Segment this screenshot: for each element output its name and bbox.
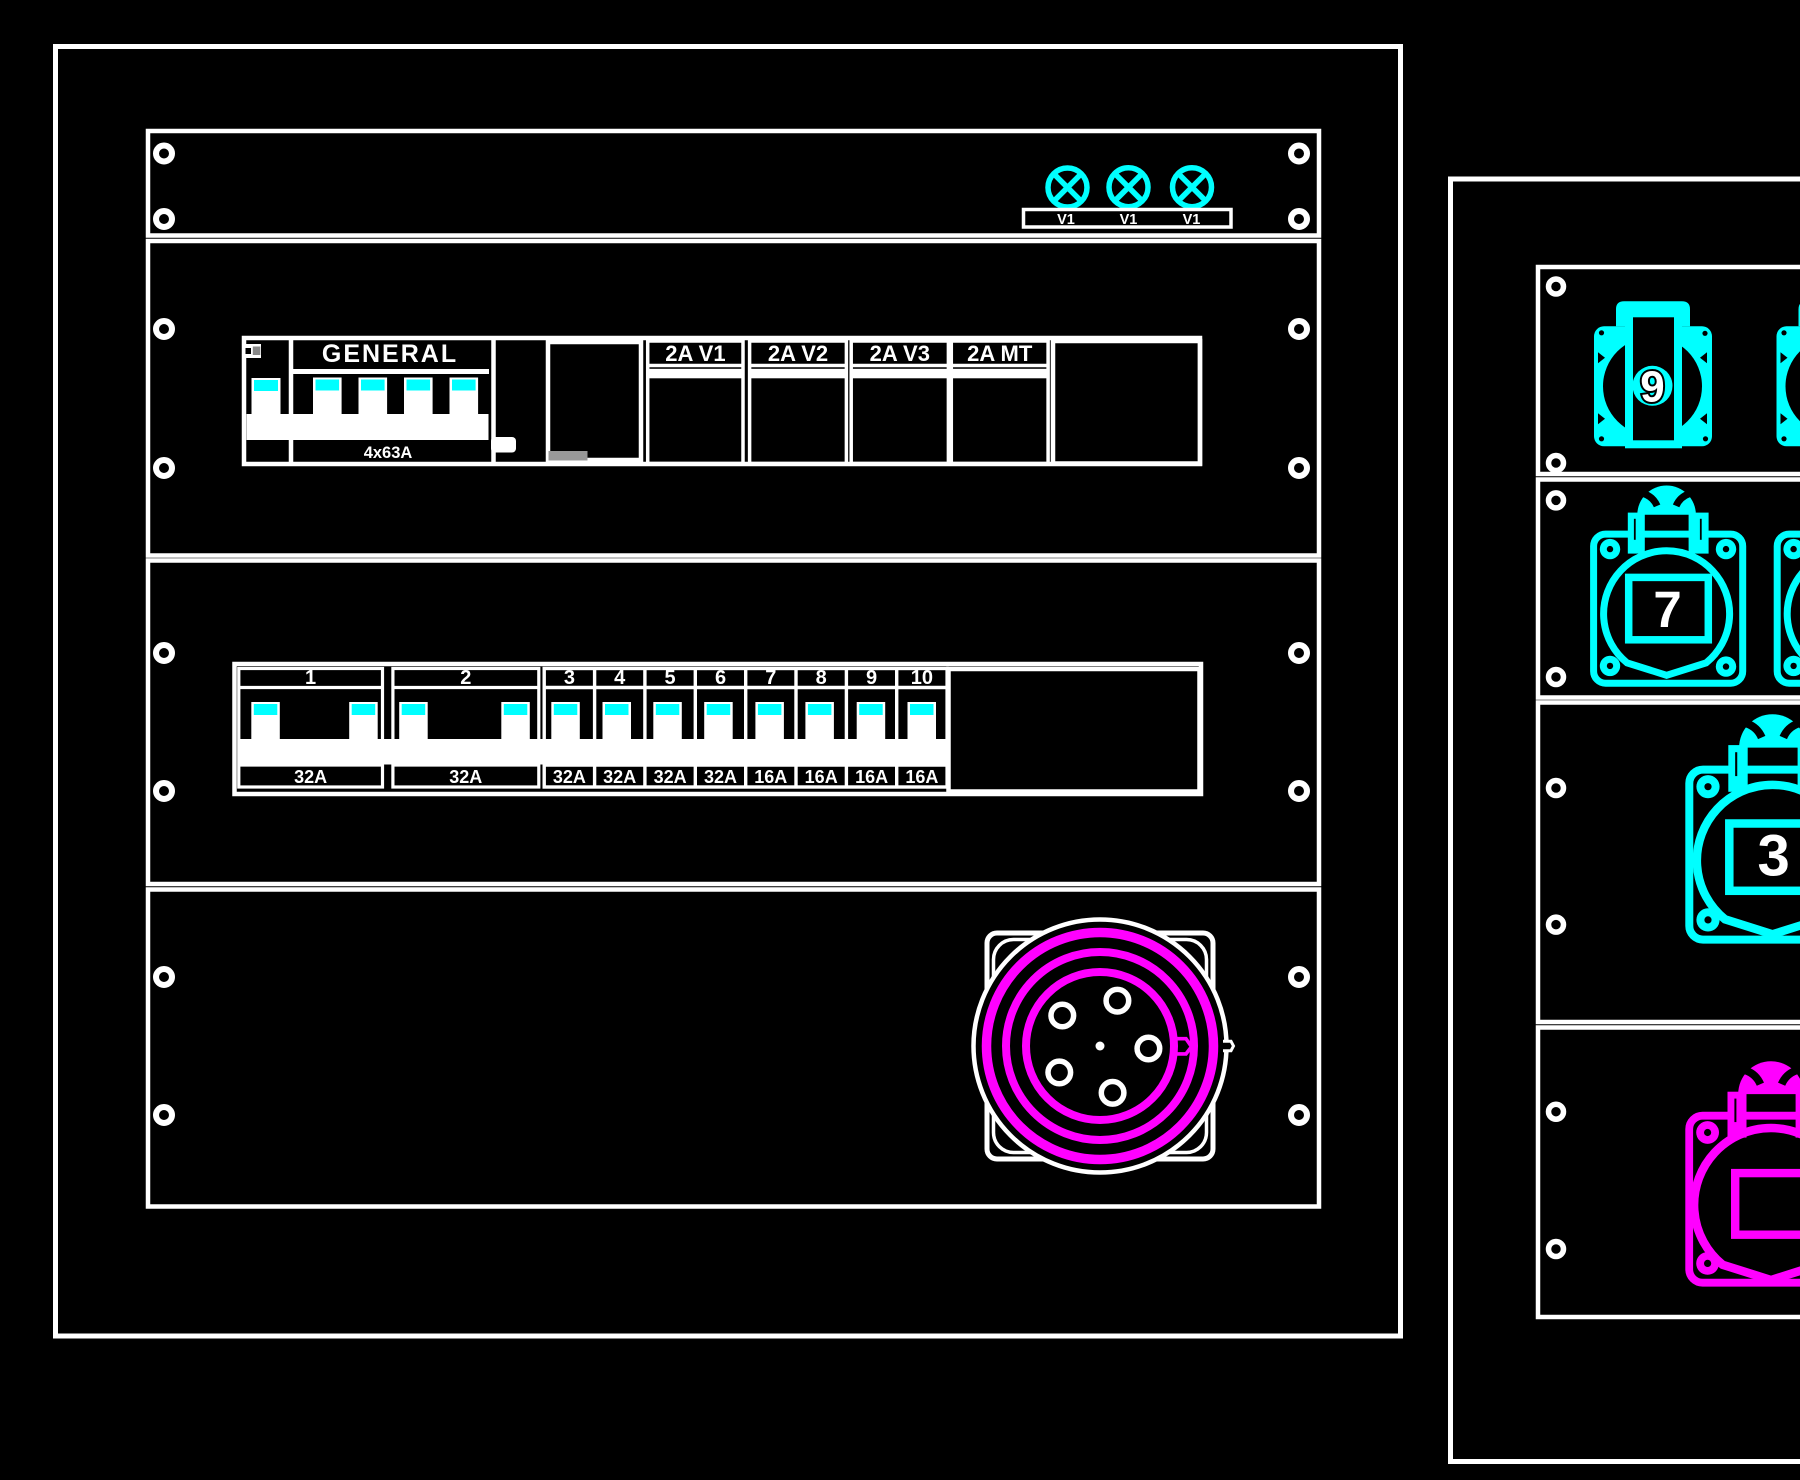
- svg-text:2A V3: 2A V3: [870, 341, 930, 366]
- svg-text:V1: V1: [1183, 212, 1201, 228]
- svg-text:32A: 32A: [704, 767, 737, 787]
- svg-text:5: 5: [665, 667, 676, 689]
- svg-text:2A V2: 2A V2: [768, 341, 828, 366]
- svg-text:10: 10: [911, 667, 933, 689]
- svg-text:9: 9: [1640, 362, 1664, 411]
- svg-text:6: 6: [715, 667, 726, 689]
- svg-text:8: 8: [816, 667, 827, 689]
- svg-text:32A: 32A: [603, 767, 636, 787]
- svg-text:V1: V1: [1120, 212, 1138, 228]
- svg-text:16A: 16A: [754, 767, 787, 787]
- svg-text:16A: 16A: [805, 767, 838, 787]
- svg-text:16A: 16A: [855, 767, 888, 787]
- svg-text:GENERAL: GENERAL: [322, 340, 458, 368]
- svg-text:2A MT: 2A MT: [967, 341, 1033, 366]
- svg-text:4: 4: [614, 667, 626, 689]
- svg-text:4x63A: 4x63A: [364, 444, 413, 462]
- svg-text:9: 9: [866, 667, 877, 689]
- svg-text:3: 3: [564, 667, 575, 689]
- svg-text:1: 1: [305, 667, 316, 689]
- svg-text:2: 2: [460, 667, 471, 689]
- svg-text:2A V1: 2A V1: [665, 341, 725, 366]
- svg-text:32A: 32A: [553, 767, 586, 787]
- svg-text:32A: 32A: [654, 767, 687, 787]
- svg-text:7: 7: [765, 667, 776, 689]
- svg-text:16A: 16A: [905, 767, 938, 787]
- svg-text:7: 7: [1653, 581, 1681, 638]
- svg-text:32A: 32A: [449, 767, 482, 787]
- svg-text:3: 3: [1757, 823, 1789, 888]
- svg-text:32A: 32A: [294, 767, 327, 787]
- svg-text:V1: V1: [1057, 212, 1075, 228]
